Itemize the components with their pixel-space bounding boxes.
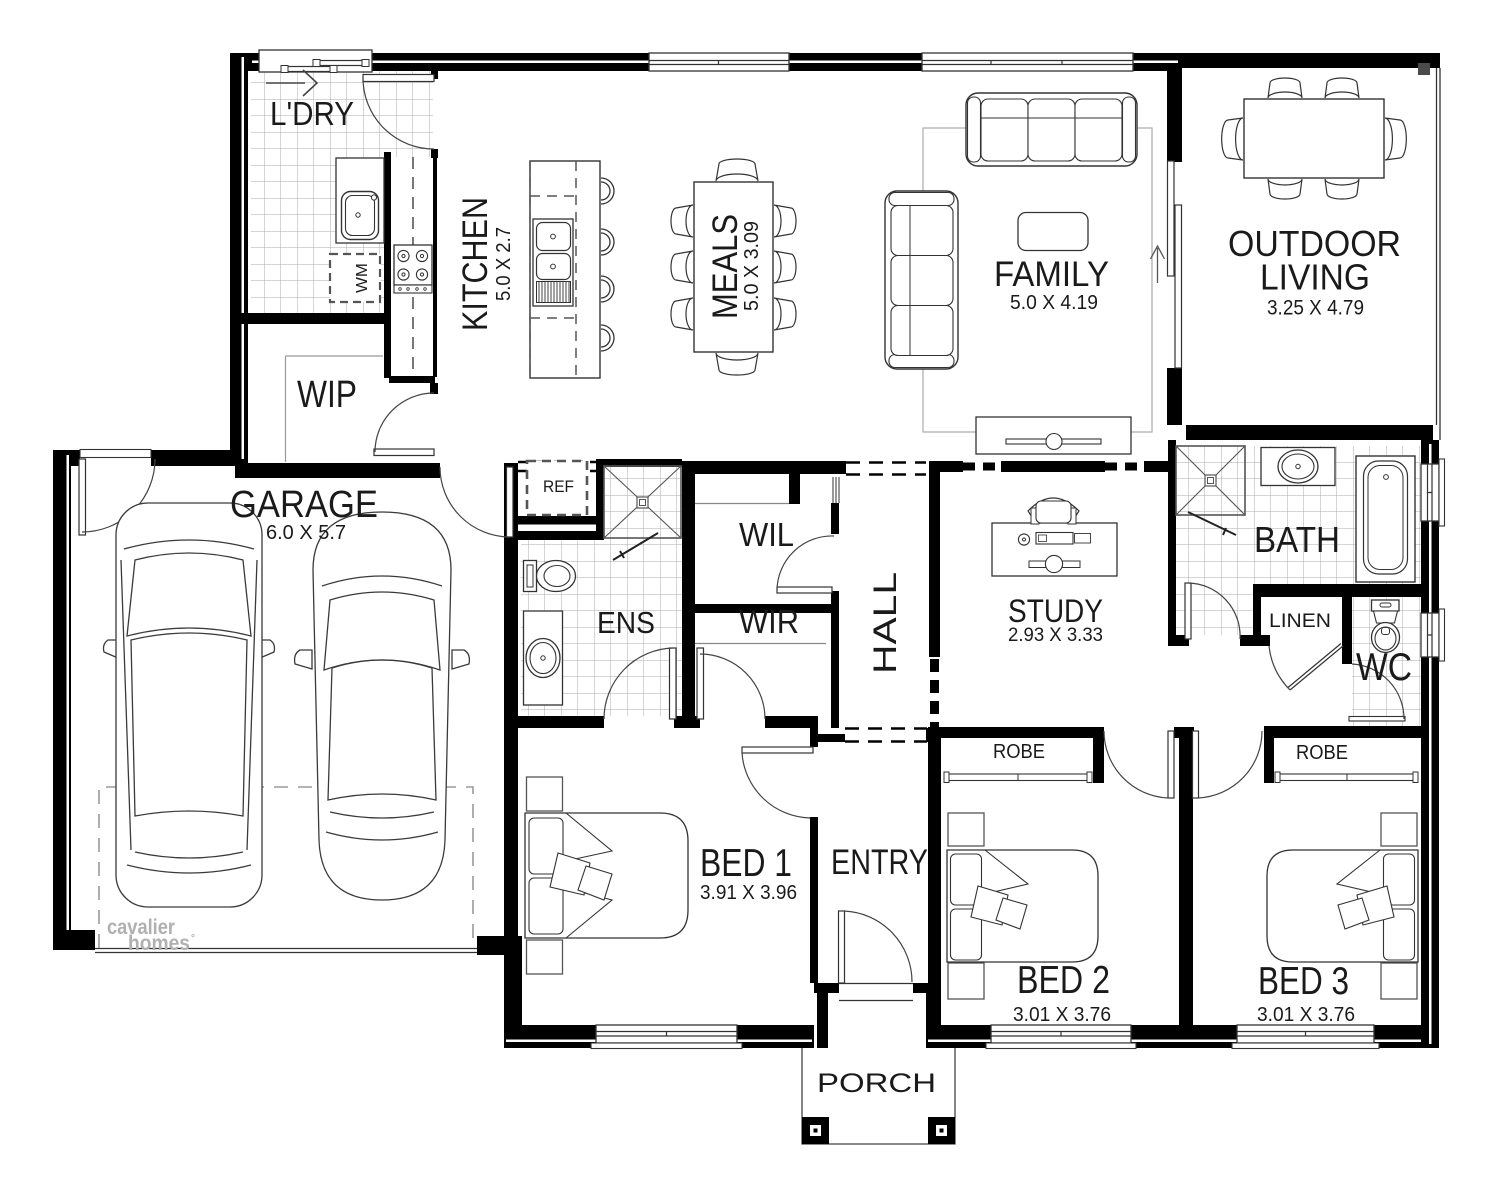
svg-text:WIR: WIR [739,603,799,640]
svg-text:BATH: BATH [1254,519,1340,560]
svg-text:BED 1: BED 1 [700,842,792,885]
svg-text:HALL: HALL [867,572,903,674]
svg-text:ENTRY: ENTRY [831,843,928,882]
svg-text:ROBE: ROBE [1296,742,1348,764]
svg-text:5.0 X 4.19: 5.0 X 4.19 [1010,291,1098,314]
svg-text:L'DRY: L'DRY [270,95,354,132]
svg-text:GARAGE: GARAGE [230,484,378,526]
svg-text:KITCHEN: KITCHEN [456,197,495,331]
svg-text:5.0 X 3.09: 5.0 X 3.09 [741,221,763,311]
svg-text:PORCH: PORCH [817,1068,936,1098]
svg-text:3.01 X 3.76: 3.01 X 3.76 [1013,1004,1111,1026]
svg-text:BED 3: BED 3 [1258,960,1349,1003]
svg-text:5.0 X 2.7: 5.0 X 2.7 [493,227,515,301]
svg-text:WM: WM [354,263,371,293]
svg-text:6.0 X 5.7: 6.0 X 5.7 [266,522,346,544]
svg-text:ROBE: ROBE [993,741,1045,763]
svg-text:WIL: WIL [739,516,794,553]
svg-text:3.01 X 3.76: 3.01 X 3.76 [1257,1004,1355,1026]
svg-text:LINEN: LINEN [1269,611,1331,632]
svg-text:3.25 X 4.79: 3.25 X 4.79 [1267,297,1364,320]
svg-text:°: ° [191,933,195,944]
svg-text:REF: REF [543,477,574,496]
svg-text:3.91 X 3.96: 3.91 X 3.96 [700,882,797,904]
svg-text:BED 2: BED 2 [1017,959,1110,1002]
svg-text:LIVING: LIVING [1260,257,1370,298]
svg-text:WC: WC [1356,646,1412,689]
svg-text:WIP: WIP [297,374,357,416]
svg-text:STUDY: STUDY [1008,593,1103,629]
svg-text:MEALS: MEALS [706,214,745,319]
svg-text:ENS: ENS [597,605,655,640]
svg-text:FAMILY: FAMILY [994,255,1109,294]
svg-text:2.93 X 3.33: 2.93 X 3.33 [1008,625,1103,646]
svg-text:homes: homes [128,932,190,955]
